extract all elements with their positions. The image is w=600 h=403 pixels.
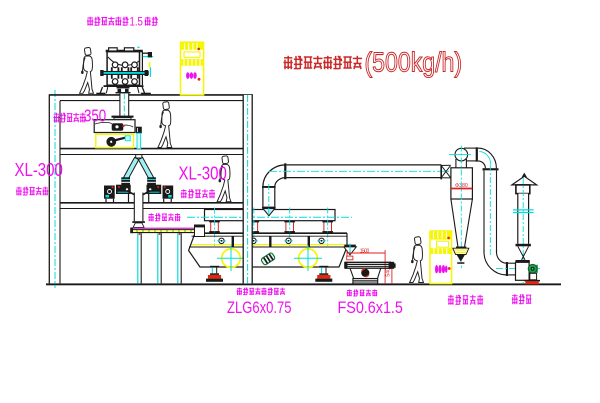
svg-text:350: 350 bbox=[84, 107, 106, 126]
svg-text:(500kg/h): (500kg/h) bbox=[365, 48, 463, 78]
svg-text:FS0.6x1.5: FS0.6x1.5 bbox=[338, 299, 403, 317]
svg-text:1.5: 1.5 bbox=[130, 16, 143, 29]
svg-text:ZLG6x0.75: ZLG6x0.75 bbox=[227, 300, 291, 318]
svg-text:XL-300: XL-300 bbox=[15, 159, 63, 180]
svg-text:XL-300: XL-300 bbox=[179, 163, 227, 184]
svg-text:1500: 1500 bbox=[360, 248, 370, 254]
svg-text:540: 540 bbox=[385, 268, 391, 277]
